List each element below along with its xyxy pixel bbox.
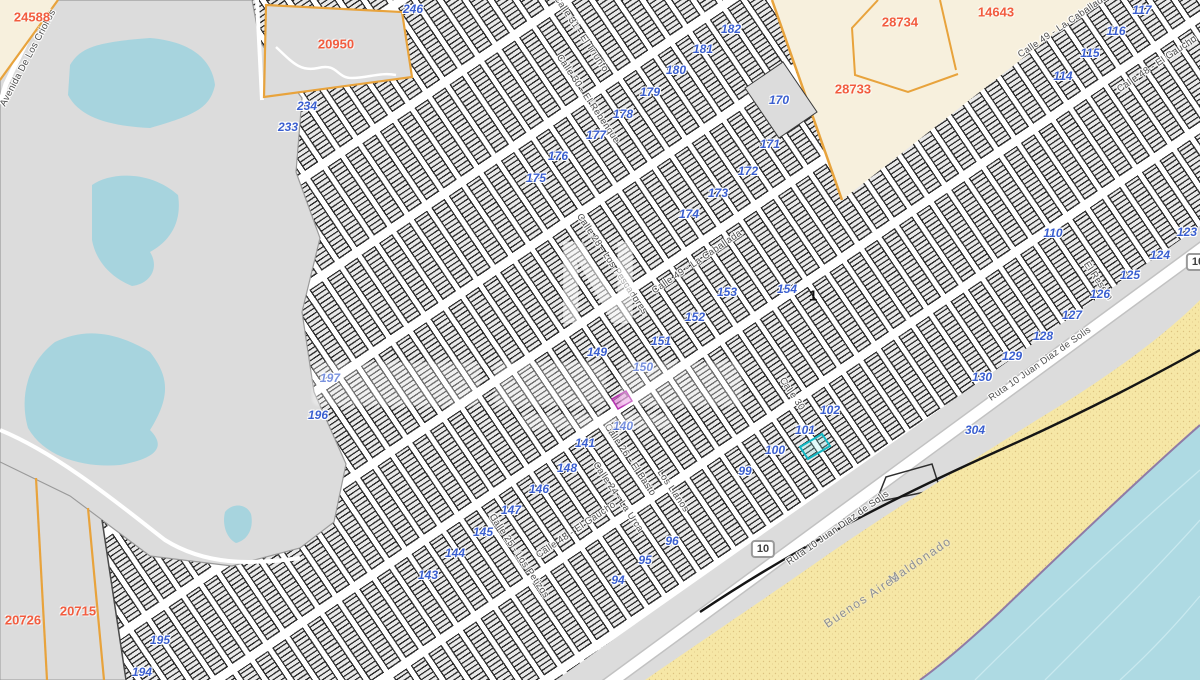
block-number: 146 bbox=[529, 482, 549, 496]
block-number: 99 bbox=[738, 464, 751, 478]
block-number: 195 bbox=[150, 633, 170, 647]
street-label: Avenida De Los Criollos bbox=[0, 8, 58, 109]
parcel-number: 28733 bbox=[835, 82, 871, 97]
street-label: Calle 25 - Los Petizos bbox=[487, 512, 551, 600]
block-number: 123 bbox=[1177, 225, 1197, 239]
street-label: Calle 26 - El Basto bbox=[602, 422, 658, 498]
street-label: Calle 49 - La Caballada bbox=[650, 228, 744, 296]
block-number: 145 bbox=[473, 525, 493, 539]
block-number: 96 bbox=[665, 534, 678, 548]
block-number: 114 bbox=[1053, 69, 1072, 83]
block-number: 126 bbox=[1090, 287, 1110, 301]
block-number: 150 bbox=[633, 360, 653, 374]
block-number: 176 bbox=[548, 149, 568, 163]
street-label: Ruta 10 Juan Diaz de Solis bbox=[785, 488, 892, 567]
parcel-number: 20950 bbox=[318, 37, 354, 52]
street-label: Calle 28 - Los Pescadores bbox=[574, 212, 650, 317]
route-shield: 10 bbox=[1186, 253, 1200, 271]
block-number: 153 bbox=[717, 285, 737, 299]
block-number: 170 bbox=[769, 93, 789, 107]
street-label: Ruta 10 Juan Diaz de Solis bbox=[987, 324, 1094, 403]
block-number: 194 bbox=[132, 665, 152, 679]
block-number: 196 bbox=[308, 408, 328, 422]
block-number: 124 bbox=[1150, 248, 1170, 262]
block-number: 304 bbox=[965, 423, 985, 437]
block-number: 174 bbox=[679, 207, 699, 221]
block-number: 179 bbox=[640, 85, 660, 99]
block-number: 127 bbox=[1062, 308, 1082, 322]
block-number: 151 bbox=[651, 334, 671, 348]
coast-label: Maldonado bbox=[886, 534, 954, 586]
block-number: 234 bbox=[297, 99, 317, 113]
block-number: 125 bbox=[1120, 268, 1140, 282]
parcel-number: 20715 bbox=[60, 604, 96, 619]
block-number: 102 bbox=[820, 403, 840, 417]
block-number: 233 bbox=[278, 120, 298, 134]
block-number: 141 bbox=[575, 436, 595, 450]
street-label: Calle 24 - La Urca bbox=[591, 460, 646, 534]
parcel-number: 24588 bbox=[14, 10, 50, 25]
map-canvas[interactable]: Avenida De Los CriollosCalle 49 - La Cab… bbox=[0, 0, 1200, 680]
block-number: 175 bbox=[526, 171, 546, 185]
block-number: 130 bbox=[972, 370, 992, 384]
parcel-number: 28734 bbox=[882, 15, 918, 30]
parcel-number: 14643 bbox=[978, 5, 1014, 20]
street-label: Calle 30 bbox=[777, 375, 807, 412]
parcel-number: 20726 bbox=[5, 613, 41, 628]
block-number: 172 bbox=[738, 164, 758, 178]
block-number: 110 bbox=[1043, 226, 1062, 240]
block-number: 197 bbox=[320, 371, 340, 385]
street-label: Los Llanos bbox=[655, 468, 691, 515]
street-label: Calle 48 - El Gaucho bbox=[1115, 33, 1199, 95]
street-label: Calle 49 - La Caballada bbox=[1016, 0, 1110, 60]
block-number: 143 bbox=[418, 568, 438, 582]
street-label: El Resero bbox=[1081, 260, 1115, 303]
block-number: 246 bbox=[403, 2, 423, 16]
block-number: 128 bbox=[1033, 329, 1053, 343]
block-number: 171 bbox=[760, 137, 780, 151]
route-shield: 10 bbox=[751, 540, 775, 558]
block-number: 173 bbox=[708, 186, 728, 200]
street-label: Calle 48 - El Gaucho bbox=[534, 499, 618, 561]
block-number: 116 bbox=[1106, 24, 1125, 38]
map-annotation: 1 bbox=[809, 288, 817, 305]
coast-label: Buenos Aires bbox=[821, 569, 902, 630]
block-number: 152 bbox=[685, 310, 705, 324]
block-number: 148 bbox=[557, 461, 577, 475]
block-number: 144 bbox=[445, 546, 465, 560]
block-number: 147 bbox=[501, 503, 521, 517]
block-number: 177 bbox=[586, 128, 606, 142]
block-number: 182 bbox=[721, 22, 741, 36]
block-number: 117 bbox=[1132, 3, 1151, 17]
block-number: 115 bbox=[1080, 46, 1099, 60]
block-number: 95 bbox=[638, 553, 651, 567]
block-number: 178 bbox=[613, 107, 633, 121]
block-number: 154 bbox=[777, 282, 797, 296]
block-number: 149 bbox=[587, 345, 607, 359]
map-labels: Avenida De Los CriollosCalle 49 - La Cab… bbox=[0, 0, 1200, 680]
block-number: 100 bbox=[765, 443, 785, 457]
block-number: 180 bbox=[666, 63, 686, 77]
block-number: 140 bbox=[613, 419, 633, 433]
block-number: 129 bbox=[1002, 349, 1022, 363]
block-number: 181 bbox=[693, 42, 713, 56]
street-label: Calle 31 - El Triunfo bbox=[551, 0, 610, 74]
block-number: 101 bbox=[795, 423, 815, 437]
street-label: Calle 30 - El Rebenque bbox=[554, 52, 622, 145]
block-number: 94 bbox=[611, 573, 624, 587]
